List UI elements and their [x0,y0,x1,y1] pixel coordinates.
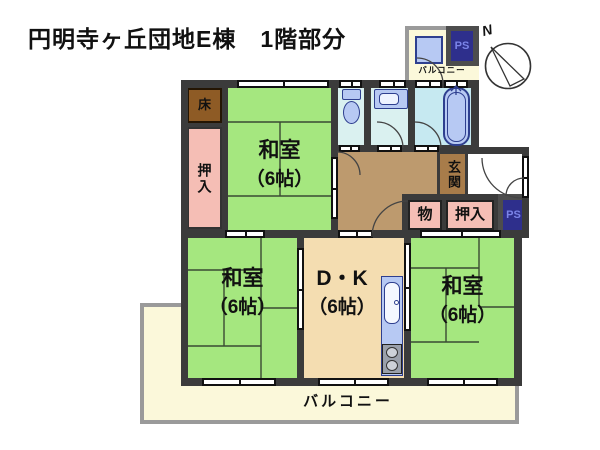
toilet-bowl-icon [343,101,360,124]
window [444,80,468,88]
room-bl-label: 和室（6帖） [188,262,297,319]
opening-hall-dk [338,230,373,238]
balcony-top-label: バルコニー [405,64,479,78]
sliding-door [331,157,338,219]
wall [437,147,529,154]
dk-label: D・K（6帖） [300,262,384,319]
compass-north-label: N [480,21,494,39]
window [202,378,276,386]
balcony-main-label: バルコニー [248,392,448,412]
sliding-door [225,230,265,238]
opening-dk-br [404,243,411,331]
storage-label: 物 [408,200,442,230]
room-br-label: 和室（6帖） [411,270,514,327]
door-gap-washroom [377,145,402,152]
wall [471,80,479,152]
front-door [522,156,529,198]
window [318,378,389,386]
stove-burner-2 [386,360,398,371]
window [339,80,362,88]
genkan-label: 玄関 [440,156,465,193]
balcony-door [415,80,442,88]
window [379,80,406,88]
ps-side-label: PS [503,200,524,231]
room-tl-label: 和室（6帖） [228,134,331,191]
stove-burner-1 [386,347,398,358]
tokonoma-label: 床 [187,88,222,123]
wall [364,85,371,152]
washbasin-sink-icon [379,93,399,105]
sliding-door [420,230,501,238]
plan-title: 円明寺ヶ丘団地E棟 1階部分 [28,20,346,54]
closet-hall-label: 押入 [446,200,494,230]
wall [514,230,522,386]
closet-left-label: 押入 [187,140,222,218]
window [427,378,498,386]
wall [408,85,415,152]
washer-pan [415,36,443,64]
door-gap-bath [414,145,439,152]
toilet-tank-icon [342,89,361,100]
floor-plan: 円明寺ヶ丘団地E棟 1階部分 バルコニー PS バルコニー [0,0,600,450]
ps-top-label: PS [451,31,473,61]
compass-icon [486,44,531,89]
window [237,80,329,88]
door-gap-toilet [339,145,360,152]
bathtub-inner [447,92,466,142]
kitchen-faucet-icon [394,300,399,305]
